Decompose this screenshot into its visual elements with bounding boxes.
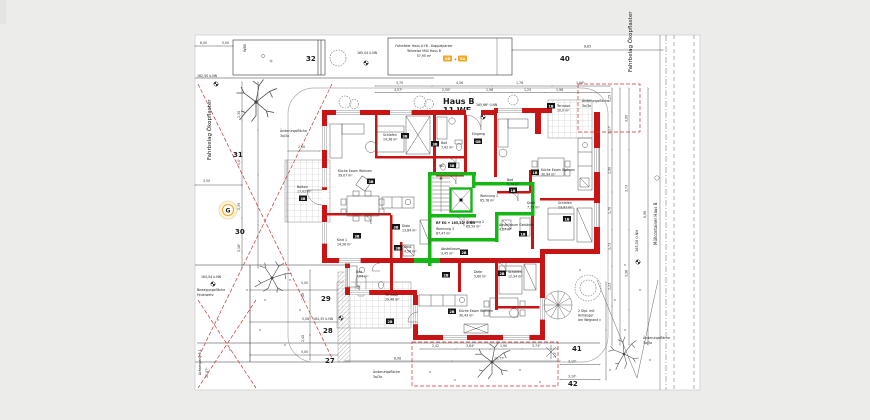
svg-text:Küche Essen Wohnen: Küche Essen Wohnen (459, 309, 493, 313)
svg-text:10,77⁵: 10,77⁵ (494, 357, 505, 361)
unit-chip-3b: 3B (394, 245, 402, 251)
floor-plan-canvas: 32 40 WBS Fahrräder Haus A+B - Doppelpar… (0, 0, 870, 420)
svg-text:29,48 m²: 29,48 m² (385, 298, 400, 302)
svg-text:3,17⁵: 3,17⁵ (608, 125, 612, 134)
svg-text:Änderungsfläche: Änderungsfläche (582, 98, 609, 103)
svg-text:3,84⁵: 3,84⁵ (466, 344, 475, 348)
svg-text:7,04 m²: 7,04 m² (356, 275, 369, 279)
room-label-schlafen-w2: Schlafen 12,94 m² (508, 270, 523, 279)
svg-text:39,07 m²: 39,07 m² (338, 174, 353, 178)
svg-text:1,06⁵: 1,06⁵ (576, 81, 585, 85)
svg-text:Balkon: Balkon (297, 185, 308, 189)
parking-number-28: 28 (323, 327, 333, 335)
svg-text:3a/3a: 3a/3a (280, 134, 289, 138)
svg-text:3,50: 3,50 (203, 179, 210, 183)
svg-text:3B: 3B (450, 164, 455, 168)
svg-text:30,94 m²: 30,94 m² (541, 173, 556, 177)
svg-text:1,25: 1,25 (524, 88, 531, 92)
svg-text:8,98: 8,98 (394, 357, 401, 361)
level-164-35: 164,35 ü.NN (313, 317, 334, 321)
svg-text:1B: 1B (511, 189, 516, 193)
svg-text:2B: 2B (388, 320, 393, 324)
dim-508: 5,08 (302, 317, 309, 321)
svg-text:Küche Essen Wohnen: Küche Essen Wohnen (541, 168, 575, 172)
unit-chip-gb: GB (443, 56, 452, 62)
svg-text:2B: 2B (444, 273, 449, 277)
unit-chip-1b: 1B (531, 170, 539, 176)
svg-text:3B: 3B (394, 225, 399, 229)
elevator (451, 189, 472, 212)
unit-chip-3b: 3B (299, 196, 307, 202)
svg-text:3,00: 3,00 (625, 115, 629, 122)
unit-chip-1b: 1B (519, 231, 527, 237)
svg-text:Diele: Diele (474, 270, 482, 274)
svg-text:2B: 2B (500, 272, 505, 276)
svg-text:3,10⁵: 3,10⁵ (568, 360, 577, 364)
svg-text:Abstellraum: Abstellraum (441, 247, 460, 251)
svg-text:1,90: 1,90 (500, 344, 507, 348)
area-number-32: 32 (306, 55, 316, 63)
unit-chip-3b: 3B (367, 179, 375, 185)
site-plan-screenshot: 32 40 WBS Fahrräder Haus A+B - Doppelpar… (0, 0, 870, 420)
svg-text:Bad: Bad (507, 178, 513, 182)
svg-text:3B: 3B (433, 142, 438, 146)
trash-container-label: Müllcontainer Haus B (653, 202, 658, 245)
svg-text:1,78: 1,78 (608, 207, 612, 214)
unit-chip-gb-eingang: GB (474, 139, 482, 145)
svg-text:30,43 m²: 30,43 m² (459, 314, 474, 318)
svg-text:8,85: 8,85 (584, 45, 591, 49)
unit-chip-1b: 1B (509, 188, 517, 194)
unit-chip-1b: 1B (547, 103, 555, 109)
svg-text:GB: GB (475, 140, 481, 144)
svg-text:Terrasse: Terrasse (384, 293, 398, 297)
svg-text:1B: 1B (521, 232, 526, 236)
svg-text:1B: 1B (549, 104, 554, 108)
svg-text:Diele: Diele (402, 224, 410, 228)
svg-text:2,23: 2,23 (608, 283, 612, 290)
svg-text:3B: 3B (301, 197, 306, 201)
road-label-left: Fahrbelag Ökopflaster (206, 99, 213, 160)
svg-text:3B: 3B (396, 246, 401, 250)
dim-240b: 2,40 (301, 335, 305, 342)
svg-text:Wohnung 1: Wohnung 1 (480, 194, 498, 198)
fire-label-2: Feuerwehr (197, 293, 214, 297)
floor-level-label: RF EG + 165,52⁵ ü.NN (436, 221, 475, 225)
svg-text:Wohnung 3: Wohnung 3 (436, 227, 454, 231)
svg-text:Bad: Bad (356, 270, 362, 274)
level-165-50: 165,50 ü.NN (635, 230, 639, 252)
svg-text:57,95 m²: 57,95 m² (417, 54, 432, 58)
svg-text:1,73: 1,73 (608, 243, 612, 250)
svg-text:8,98: 8,98 (643, 211, 647, 218)
svg-text:17,02 m²: 17,02 m² (297, 190, 312, 194)
svg-text:4,57⁵: 4,57⁵ (394, 88, 403, 92)
svg-text:2,00: 2,00 (298, 145, 305, 149)
svg-text:5,74 m²: 5,74 m² (507, 183, 520, 187)
svg-text:10,0 m²: 10,0 m² (557, 109, 570, 113)
svg-text:Diele: Diele (527, 201, 535, 205)
svg-text:14,38 m²: 14,38 m² (383, 138, 398, 142)
parking-number-29: 29 (321, 295, 331, 303)
svg-text:Fahrräder Haus A+B - Doppelpar: Fahrräder Haus A+B - Doppelparker (395, 44, 453, 48)
unit-chip-2b: 2B (460, 250, 468, 256)
fire-label-1: Bewegungsfläche (197, 288, 225, 292)
svg-text:2,39: 2,39 (237, 203, 241, 210)
unit-chip-1b: 1B (563, 216, 571, 222)
svg-text:5,16⁵: 5,16⁵ (237, 243, 241, 252)
svg-text:87,47 m²: 87,47 m² (436, 232, 451, 236)
svg-text:1,98: 1,98 (486, 88, 493, 92)
svg-text:4,56: 4,56 (456, 81, 463, 85)
unit-chip-3b: 3B (401, 133, 409, 139)
parking-number-30: 30 (235, 228, 245, 236)
svg-text:89,59 m²: 89,59 m² (466, 225, 481, 229)
svg-text:GB: GB (445, 57, 451, 61)
svg-text:14,26 m²: 14,26 m² (337, 243, 352, 247)
svg-text:6,00: 6,00 (200, 41, 207, 45)
svg-text:Kind 1: Kind 1 (337, 238, 347, 242)
svg-text:13,84 m²: 13,84 m² (402, 229, 417, 233)
svg-text:2,98: 2,98 (608, 167, 612, 174)
svg-text:Abst.: Abst. (404, 245, 412, 249)
svg-text:1,98: 1,98 (556, 88, 563, 92)
svg-text:2B: 2B (462, 251, 467, 255)
spiral-stair (544, 291, 572, 319)
svg-text:3,10⁵: 3,10⁵ (568, 375, 577, 379)
svg-text:3a/3a: 3a/3a (582, 104, 591, 108)
side-street-label: Achsengang 5.1 (198, 349, 202, 375)
svg-text:GA: GA (460, 57, 466, 61)
wbs-label: WBS (243, 43, 247, 52)
level-symbol (214, 82, 218, 86)
unit-chip-3b: 3B (448, 163, 456, 169)
svg-text:12,94 m²: 12,94 m² (508, 275, 523, 279)
unit-chip-2b: 2B (498, 271, 506, 277)
svg-text:65,78 m²: 65,78 m² (480, 199, 495, 203)
svg-text:5,00: 5,00 (222, 41, 229, 45)
level-symbol (481, 115, 485, 119)
room-label-schlafen-w1: Schlafen 13,91 m² (558, 201, 573, 210)
svg-text:Bad: Bad (441, 141, 447, 145)
svg-text:3,36: 3,36 (625, 270, 629, 277)
level-symbol (364, 61, 368, 65)
svg-text:1B: 1B (565, 217, 570, 221)
svg-text:2 Stpl. mit: 2 Stpl. mit (578, 309, 595, 313)
svg-text:3,73: 3,73 (625, 185, 629, 192)
svg-text:2,30: 2,30 (237, 111, 241, 118)
level-165-04: 165,04 ü.NN (357, 51, 378, 55)
unit-chip-3b: 3B (431, 141, 439, 147)
unit-chip-ga: GA (458, 56, 467, 62)
room-label-wc-w3: WC (439, 164, 445, 168)
svg-text:2,42: 2,42 (432, 344, 439, 348)
svg-text:7,77 m²: 7,77 m² (527, 206, 540, 210)
road-label-right: Fahrbelag Ökopflaster (627, 11, 634, 72)
area-number-40: 40 (560, 55, 570, 63)
level-symbol (211, 282, 215, 286)
level-symbol (636, 260, 640, 264)
level-162-50: 162,50 ü.NN (197, 74, 218, 78)
title-level: 165,66⁵ ü.NN (476, 103, 498, 107)
svg-text:Teilweise Müll Haus B: Teilweise Müll Haus B (406, 49, 441, 53)
area-number-42: 42 (568, 380, 578, 388)
unit-chip-2b: 2B (448, 309, 456, 315)
dim-500b: 5,00 (301, 350, 308, 354)
unit-chip-3b: 3B (392, 224, 400, 230)
svg-text:Anhänger: Anhänger (578, 314, 594, 318)
building-title-line1: Haus B (443, 97, 474, 106)
svg-text:3,73⁵: 3,73⁵ (532, 344, 541, 348)
svg-text:3a/3a: 3a/3a (373, 375, 382, 379)
dim-500a: 5,00 (301, 281, 308, 285)
room-label-terrasse-w1: Terrasse 10,0 m² (556, 104, 570, 113)
svg-text:Änderungsfläche: Änderungsfläche (280, 128, 307, 133)
svg-text:Änderungsfläche: Änderungsfläche (643, 335, 670, 340)
g-badge: G (219, 201, 237, 219)
svg-text:3,45 m²: 3,45 m² (441, 252, 454, 256)
svg-text:Abstellraum Getränke: Abstellraum Getränke (499, 223, 534, 227)
unit-chip-2b: 2B (386, 319, 394, 325)
svg-text:Küche Essen Wohnen: Küche Essen Wohnen (338, 169, 372, 173)
room-label-eingang: Eingang (472, 132, 485, 136)
svg-text:3,70: 3,70 (396, 81, 403, 85)
svg-text:4,58 m²: 4,58 m² (404, 250, 417, 254)
svg-text:Änderungsfläche: Änderungsfläche (373, 369, 400, 374)
svg-text:7,42 m²: 7,42 m² (441, 146, 454, 150)
svg-text:4,27 m²: 4,27 m² (499, 228, 512, 232)
svg-text:G: G (226, 207, 231, 214)
svg-text:3B: 3B (355, 234, 360, 238)
plus-sign: + (454, 58, 457, 62)
parking-number-27: 27 (325, 357, 335, 365)
svg-text:Schlafen: Schlafen (558, 201, 572, 205)
svg-text:3B: 3B (403, 134, 408, 138)
dim-240a: 2,40 (301, 293, 305, 300)
area-number-41: 41 (572, 345, 582, 353)
room-label-schlafen-w3: Schlafen 14,38 m² (383, 133, 398, 142)
svg-text:5,60 m²: 5,60 m² (474, 275, 487, 279)
svg-text:am Wegrand: am Wegrand (578, 318, 598, 322)
svg-text:Schlafen: Schlafen (383, 133, 397, 137)
side-dim: 10,07⁵ (205, 367, 209, 378)
level-164-54: 164,54 ü.NN (201, 275, 222, 279)
unit-chip-2b: 2B (442, 272, 450, 278)
svg-text:1,76: 1,76 (516, 81, 523, 85)
svg-text:13,91 m²: 13,91 m² (558, 206, 573, 210)
parking-number-31: 31 (233, 151, 243, 159)
svg-text:2B: 2B (450, 310, 455, 314)
room-label-terrasse-w2: Terrasse 29,48 m² (384, 293, 400, 302)
svg-text:Schlafen: Schlafen (508, 270, 522, 274)
svg-text:Terrasse: Terrasse (556, 104, 570, 108)
svg-text:1B: 1B (533, 171, 538, 175)
unit-chip-3b: 3B (353, 233, 361, 239)
svg-text:3B: 3B (369, 180, 374, 184)
svg-text:2,50⁵: 2,50⁵ (442, 88, 451, 92)
